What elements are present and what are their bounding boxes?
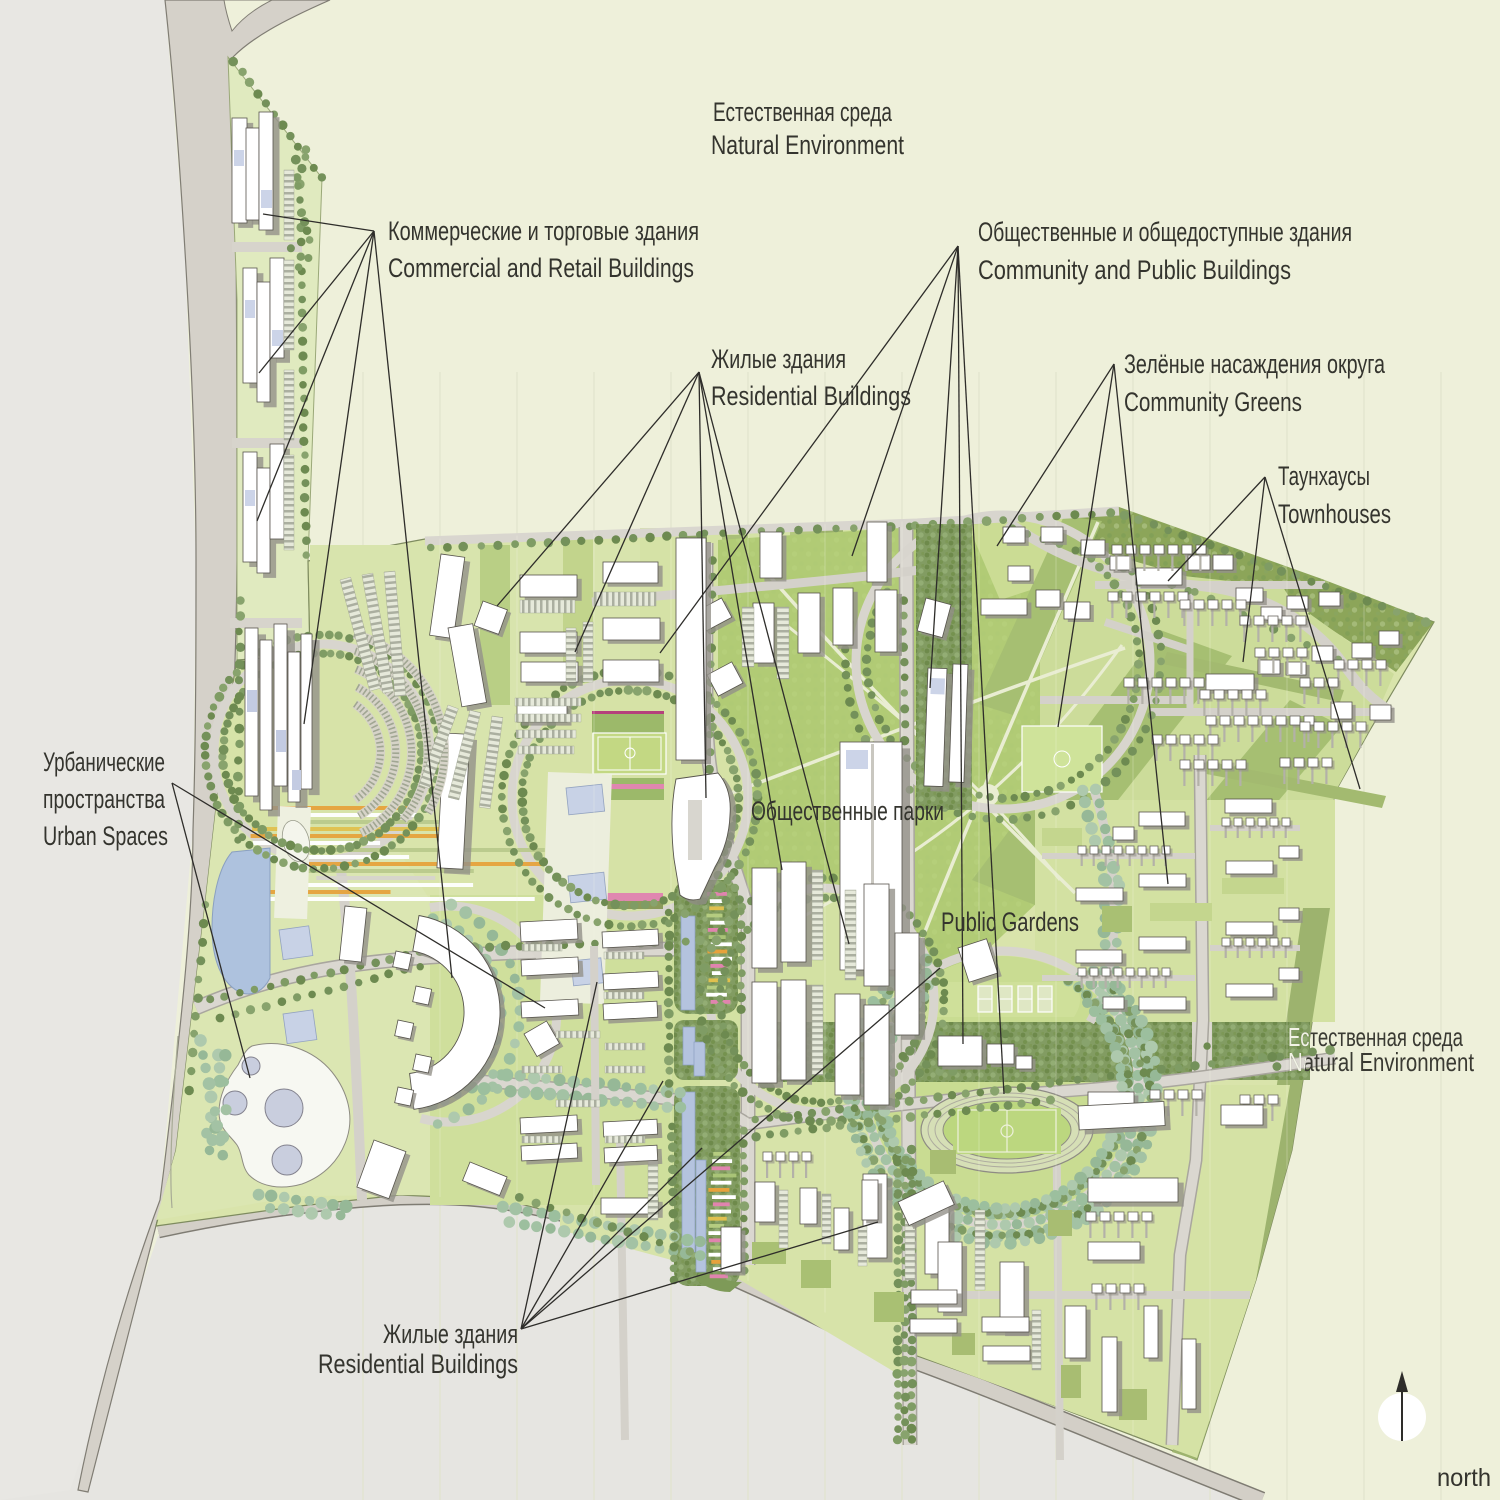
svg-text:Natural Environment: Natural Environment bbox=[1288, 1047, 1475, 1077]
svg-text:Public Gardens: Public Gardens bbox=[941, 907, 1079, 937]
svg-text:Жилые здания: Жилые здания bbox=[711, 344, 846, 374]
svg-text:Зелёные насаждения округа: Зелёные насаждения округа bbox=[1124, 349, 1386, 379]
svg-text:Естественная среда: Естественная среда bbox=[713, 97, 893, 127]
svg-text:Natural Environment: Natural Environment bbox=[711, 130, 904, 160]
svg-text:Коммерческие и торговые здания: Коммерческие и торговые здания bbox=[388, 216, 699, 246]
svg-text:north: north bbox=[1437, 1464, 1491, 1492]
svg-text:Community Greens: Community Greens bbox=[1124, 387, 1302, 417]
svg-text:Commercial and Retail Building: Commercial and Retail Buildings bbox=[388, 253, 694, 283]
svg-text:Общественные и общедоступные з: Общественные и общедоступные здания bbox=[978, 217, 1352, 247]
svg-text:Community and Public Buildings: Community and Public Buildings bbox=[978, 255, 1291, 285]
svg-text:пространства: пространства bbox=[43, 784, 166, 814]
svg-text:Таунхаусы: Таунхаусы bbox=[1278, 461, 1370, 491]
svg-text:Residential Buildings: Residential Buildings bbox=[318, 1349, 518, 1379]
svg-text:Общественные парки: Общественные парки bbox=[751, 796, 944, 826]
svg-text:Урбанические: Урбанические bbox=[43, 747, 165, 777]
svg-text:Townhouses: Townhouses bbox=[1278, 499, 1391, 529]
svg-text:Urban Spaces: Urban Spaces bbox=[43, 821, 168, 851]
svg-text:Residential Buildings: Residential Buildings bbox=[711, 381, 911, 411]
svg-text:Жилые здания: Жилые здания bbox=[383, 1319, 518, 1349]
